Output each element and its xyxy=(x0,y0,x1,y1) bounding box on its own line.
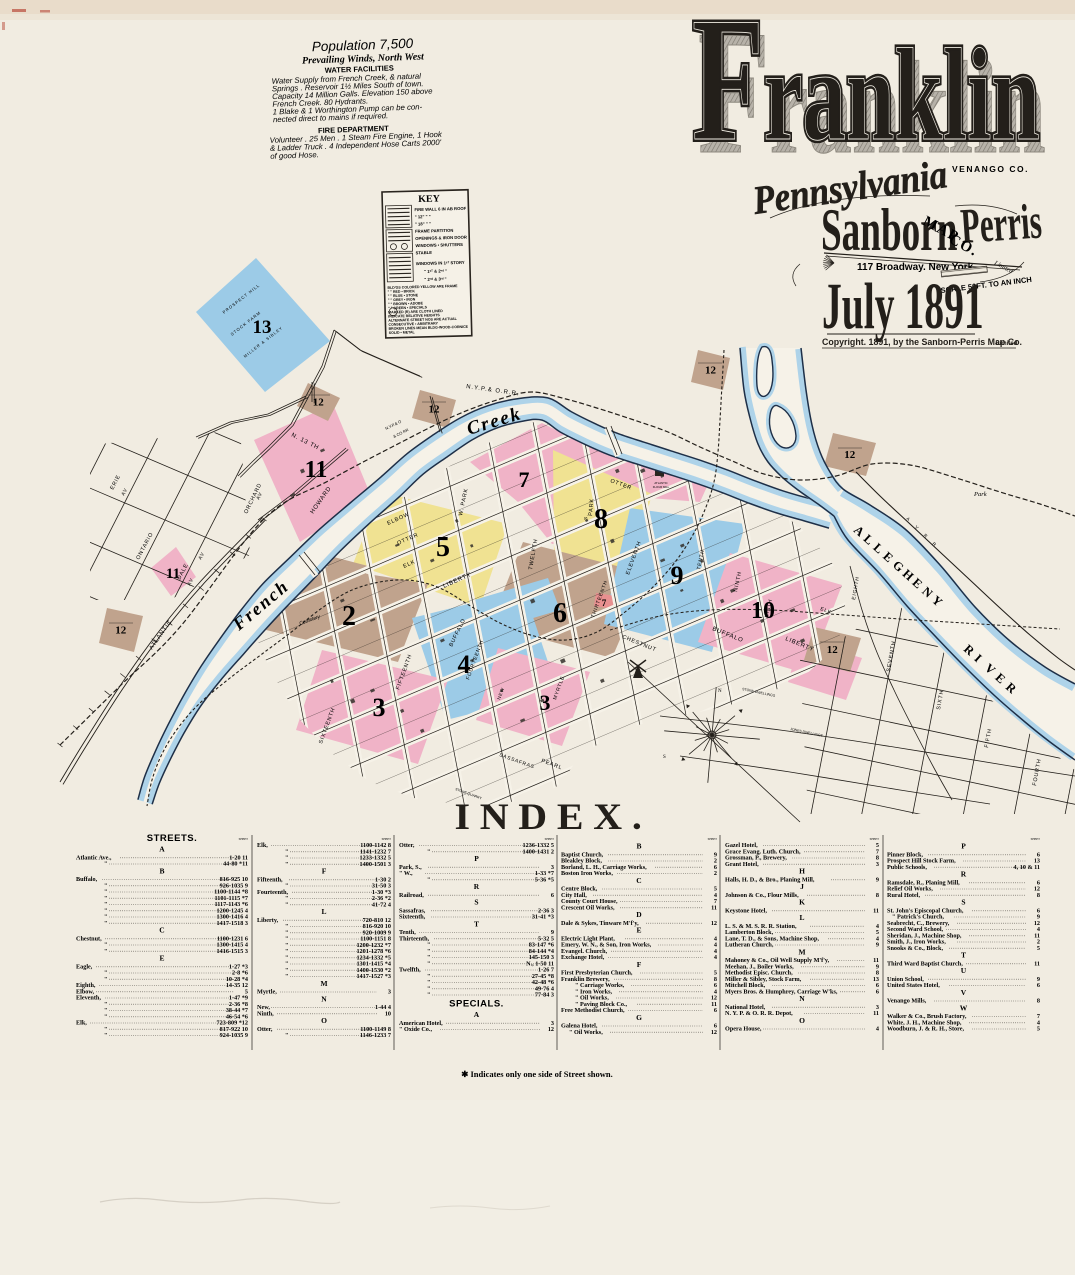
svg-text:INDEX.: INDEX. xyxy=(454,797,651,837)
svg-text:6: 6 xyxy=(551,892,554,899)
svg-text:O: O xyxy=(799,1016,805,1025)
svg-text:": " xyxy=(427,960,430,967)
svg-text:1400-1501 3: 1400-1501 3 xyxy=(360,861,391,868)
svg-text:12: 12 xyxy=(429,404,441,416)
svg-text:11: 11 xyxy=(873,907,879,914)
svg-text:Eleventh,: Eleventh, xyxy=(76,995,101,1002)
svg-text:77-84 3: 77-84 3 xyxy=(535,992,554,999)
svg-text:6: 6 xyxy=(553,598,567,629)
svg-text:": " xyxy=(104,976,107,983)
svg-text:S.: S. xyxy=(583,514,588,520)
svg-text:SHEET: SHEET xyxy=(239,837,249,841)
svg-text:1146-1233 7: 1146-1233 7 xyxy=(360,1032,391,1039)
svg-text:1417-1518 3: 1417-1518 3 xyxy=(217,920,248,927)
svg-text:" 18" " ": " 18" " " xyxy=(415,221,431,226)
svg-text:P: P xyxy=(474,854,479,863)
svg-text:12: 12 xyxy=(115,624,127,636)
svg-text:R: R xyxy=(474,882,480,891)
svg-text:10: 10 xyxy=(751,598,775,624)
svg-text:6: 6 xyxy=(1037,982,1040,989)
svg-text:4: 4 xyxy=(714,954,717,961)
svg-text:T: T xyxy=(961,951,966,960)
svg-text:44-80 *11: 44-80 *11 xyxy=(223,861,248,868)
svg-text:Buffalo,: Buffalo, xyxy=(76,876,98,883)
svg-text:W: W xyxy=(960,1003,968,1012)
svg-text:F: F xyxy=(637,960,642,969)
svg-text:" 1ˢᵀ & 2ⁿᵈ ": " 1ˢᵀ & 2ⁿᵈ " xyxy=(424,268,447,274)
svg-text:": " xyxy=(285,901,288,908)
svg-text:Elk,: Elk, xyxy=(76,1020,87,1027)
svg-text:8: 8 xyxy=(1037,892,1040,899)
svg-text:B: B xyxy=(159,866,164,875)
svg-text:": " xyxy=(104,1013,107,1020)
svg-text:E: E xyxy=(636,926,641,935)
svg-text:5: 5 xyxy=(1037,945,1040,952)
svg-text:" Oxide Co.,: " Oxide Co., xyxy=(399,1026,432,1033)
svg-text:A: A xyxy=(474,1010,480,1019)
svg-text:Free Methodist Church,: Free Methodist Church, xyxy=(561,1007,625,1014)
svg-text:SHEET: SHEET xyxy=(545,837,555,841)
svg-text:41-72 4: 41-72 4 xyxy=(372,901,391,908)
svg-text:Twelfth,: Twelfth, xyxy=(399,967,421,974)
svg-text:KEY: KEY xyxy=(418,193,441,205)
svg-text:Rural Hotel,: Rural Hotel, xyxy=(887,892,920,899)
svg-text:Limited: Limited xyxy=(996,340,1018,347)
svg-text:C: C xyxy=(636,876,641,885)
svg-text:" 2ⁿᵈ & 3ʳᵈ ": " 2ⁿᵈ & 3ʳᵈ " xyxy=(424,276,446,282)
svg-text:S: S xyxy=(961,898,965,907)
svg-text:Ninth,: Ninth, xyxy=(257,1010,274,1017)
svg-text:": " xyxy=(427,848,430,855)
svg-text:M: M xyxy=(798,947,805,956)
svg-text:Eagle,: Eagle, xyxy=(76,963,93,970)
svg-text:E: E xyxy=(159,954,164,963)
svg-text:12: 12 xyxy=(711,1029,717,1036)
svg-text:Venango Mills,: Venango Mills, xyxy=(887,998,927,1005)
svg-text:11: 11 xyxy=(1034,960,1040,967)
svg-text:9: 9 xyxy=(876,876,879,883)
svg-text:": " xyxy=(285,973,288,980)
svg-text:SOLID • METAL: SOLID • METAL xyxy=(389,330,416,335)
svg-text:": " xyxy=(104,948,107,955)
svg-text:9: 9 xyxy=(876,942,879,949)
svg-text:U: U xyxy=(961,966,967,975)
svg-text:Copyright. 1891, by the Sanbor: Copyright. 1891, by the Sanborn-Perris M… xyxy=(822,337,1022,347)
svg-text:O: O xyxy=(321,1016,327,1025)
svg-text:8: 8 xyxy=(1037,998,1040,1005)
svg-text:Thirteenth,: Thirteenth, xyxy=(399,935,430,942)
svg-text:Public Schools,: Public Schools, xyxy=(887,864,927,871)
svg-text:11: 11 xyxy=(305,457,328,483)
svg-text:11: 11 xyxy=(873,1010,879,1017)
svg-text:12: 12 xyxy=(827,644,839,656)
svg-text:": " xyxy=(285,1032,288,1039)
svg-text:M: M xyxy=(320,979,327,988)
svg-text:Myers Bros. & Humphrey, Carria: Myers Bros. & Humphrey, Carriage W'ks, xyxy=(725,988,838,995)
svg-text:2: 2 xyxy=(342,601,356,632)
svg-text:": " xyxy=(104,920,107,927)
svg-text:N: N xyxy=(321,994,327,1003)
svg-text:P: P xyxy=(961,842,966,851)
svg-text:3: 3 xyxy=(373,693,386,722)
svg-text:5: 5 xyxy=(436,532,450,563)
svg-text:Boston Iron Works,: Boston Iron Works, xyxy=(561,870,613,877)
svg-text:" 12" " ": " 12" " " xyxy=(415,214,431,219)
svg-text:4: 4 xyxy=(458,650,471,679)
svg-text:Otter,: Otter, xyxy=(257,1026,273,1033)
svg-text:924-1035 9: 924-1035 9 xyxy=(220,1032,248,1039)
svg-text:V: V xyxy=(961,988,967,997)
svg-text:Snooks & Co., Block,: Snooks & Co., Block, xyxy=(887,945,943,952)
svg-text:Johnson & Co., Flour Mills,: Johnson & Co., Flour Mills, xyxy=(725,892,799,899)
svg-text:1400-1431 2: 1400-1431 2 xyxy=(523,848,554,855)
svg-text:11: 11 xyxy=(166,566,180,582)
svg-text:Sixteenth,: Sixteenth, xyxy=(399,914,426,921)
svg-text:3: 3 xyxy=(388,989,391,996)
svg-text:3: 3 xyxy=(540,690,551,715)
svg-text:R: R xyxy=(961,870,967,879)
svg-text:Railroad,: Railroad, xyxy=(399,892,424,899)
svg-text:A: A xyxy=(159,845,165,854)
svg-text:H: H xyxy=(799,867,805,876)
svg-text:10: 10 xyxy=(385,1010,391,1017)
svg-text:12: 12 xyxy=(313,397,325,409)
svg-text:S: S xyxy=(474,898,478,907)
svg-text:SPECIALS.: SPECIALS. xyxy=(449,998,504,1009)
svg-text:": " xyxy=(104,1032,107,1039)
svg-text:": " xyxy=(427,876,430,883)
svg-text:5: 5 xyxy=(1037,1026,1040,1033)
svg-text:Grant Hotel,: Grant Hotel, xyxy=(725,861,759,868)
svg-text:": " xyxy=(285,861,288,868)
svg-text:Opera House,: Opera House, xyxy=(725,1026,762,1033)
svg-text:F: F xyxy=(322,867,327,876)
svg-text:L: L xyxy=(799,913,804,922)
svg-text:B: B xyxy=(636,842,641,851)
svg-text:Otter,: Otter, xyxy=(399,842,415,849)
svg-text:6: 6 xyxy=(714,1007,717,1014)
svg-text:12: 12 xyxy=(844,449,856,461)
svg-text:5-36 *5: 5-36 *5 xyxy=(535,876,554,883)
svg-text:Keystone Hotel,: Keystone Hotel, xyxy=(725,907,767,914)
svg-text:SHEET: SHEET xyxy=(382,837,392,841)
svg-text:N. Y. P. & O. R. R. Depot,: N. Y. P. & O. R. R. Depot, xyxy=(725,1010,793,1017)
svg-text:Crescent Oil Works,: Crescent Oil Works, xyxy=(561,904,615,911)
svg-text:Liberty,: Liberty, xyxy=(257,917,279,924)
svg-text:STREETS.: STREETS. xyxy=(147,833,197,844)
svg-text:FRAME PARTITION: FRAME PARTITION xyxy=(415,228,453,234)
svg-text:4: 4 xyxy=(876,1026,879,1033)
svg-text:SHEET: SHEET xyxy=(1031,837,1041,841)
svg-text:of good Hose.: of good Hose. xyxy=(270,150,319,161)
svg-text:": " xyxy=(427,992,430,999)
svg-text:C: C xyxy=(159,926,164,935)
svg-text:11: 11 xyxy=(711,904,717,911)
svg-text:2: 2 xyxy=(714,870,717,877)
svg-text:7: 7 xyxy=(519,467,530,492)
svg-text:Exchange Hotel,: Exchange Hotel, xyxy=(561,954,605,961)
svg-text:1417-1527 *3: 1417-1527 *3 xyxy=(356,973,391,980)
svg-text:9: 9 xyxy=(671,561,684,590)
svg-text:United States Hotel,: United States Hotel, xyxy=(887,982,940,989)
svg-text:L: L xyxy=(321,907,326,916)
svg-text:J: J xyxy=(800,882,804,891)
svg-text:6: 6 xyxy=(876,988,879,995)
svg-text:Franklin: Franklin xyxy=(692,0,1040,178)
svg-text:3: 3 xyxy=(876,861,879,868)
svg-text:Elk,: Elk, xyxy=(257,842,268,849)
svg-text:Dale & Sykes, Tinware M'f'y,: Dale & Sykes, Tinware M'f'y, xyxy=(561,920,639,927)
svg-text:VENANGO CO.: VENANGO CO. xyxy=(952,164,1029,174)
svg-text:8: 8 xyxy=(876,892,879,899)
svg-text:S: S xyxy=(663,755,666,760)
svg-text:STABLE: STABLE xyxy=(416,250,433,255)
svg-text:Third Ward Baptist Church,: Third Ward Baptist Church, xyxy=(887,960,963,967)
svg-text:" W.,: " W., xyxy=(399,870,413,877)
svg-text:K: K xyxy=(799,898,805,907)
svg-text:✱ Indicates only one side of: ✱ Indicates only one side of Street show… xyxy=(461,1069,612,1079)
svg-text:": " xyxy=(104,861,107,868)
svg-text:Fourteenth,: Fourteenth, xyxy=(257,889,289,896)
svg-text:Chestnut,: Chestnut, xyxy=(76,935,102,942)
svg-text:8: 8 xyxy=(594,504,608,535)
svg-text:Myrtle,: Myrtle, xyxy=(257,989,277,996)
svg-text:1416-1515 3: 1416-1515 3 xyxy=(217,948,248,955)
svg-text:SHEET: SHEET xyxy=(708,837,718,841)
svg-text:T: T xyxy=(474,919,479,928)
svg-text:N: N xyxy=(799,994,805,1003)
svg-text:" Oil Works,: " Oil Works, xyxy=(569,1029,603,1036)
svg-text:4, 10 & 11: 4, 10 & 11 xyxy=(1014,864,1040,871)
svg-text:Woodburn, J. & R. H., Store,: Woodburn, J. & R. H., Store, xyxy=(887,1026,965,1033)
svg-text:12: 12 xyxy=(711,920,717,927)
svg-text:31-41 *3: 31-41 *3 xyxy=(532,914,554,921)
svg-text:July 1891: July 1891 xyxy=(822,270,984,343)
svg-text:Fifteenth,: Fifteenth, xyxy=(257,876,283,883)
svg-text:13: 13 xyxy=(253,317,272,338)
svg-text:12: 12 xyxy=(548,1026,554,1033)
svg-text:N: N xyxy=(718,689,722,694)
svg-text:G: G xyxy=(636,1013,642,1022)
svg-text:Park: Park xyxy=(973,491,987,498)
svg-text:Lutheran Church,: Lutheran Church, xyxy=(725,942,774,949)
svg-text:FLOUR MILL: FLOUR MILL xyxy=(653,485,670,489)
svg-text:12: 12 xyxy=(705,365,717,377)
svg-text:D: D xyxy=(636,910,642,919)
svg-text:SHEET: SHEET xyxy=(870,837,880,841)
